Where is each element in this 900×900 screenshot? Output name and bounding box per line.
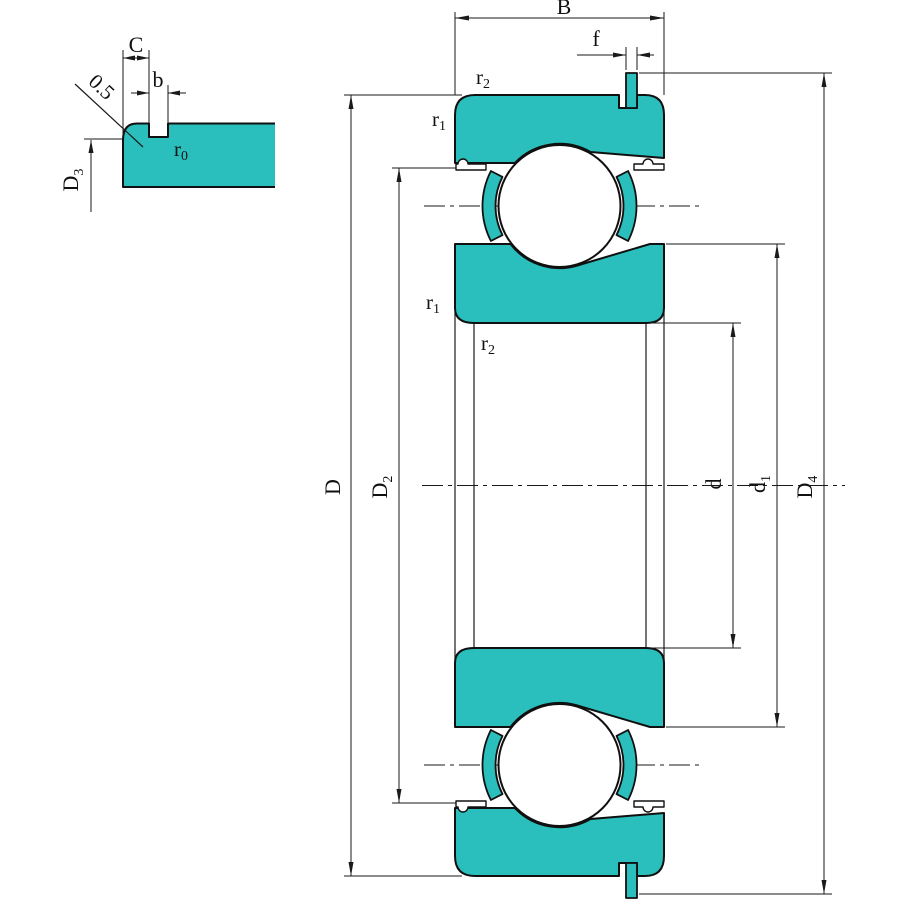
dim-d-label: d	[701, 479, 726, 490]
dim-b-label: b	[153, 67, 164, 92]
bearing-drawing-canvas: C b 0.5 r0 D3	[0, 0, 900, 900]
ball-bottom	[499, 704, 621, 826]
ball-top	[499, 145, 621, 267]
snap-ring-top	[626, 73, 637, 108]
dim-C-label: C	[129, 32, 144, 57]
snap-ring-bottom	[626, 863, 637, 898]
dim-f-label: f	[592, 26, 600, 51]
dim-D-label: D	[320, 479, 345, 495]
technical-drawing: C b 0.5 r0 D3	[0, 0, 900, 900]
detail-block	[123, 124, 275, 188]
dim-B-label: B	[557, 0, 572, 19]
